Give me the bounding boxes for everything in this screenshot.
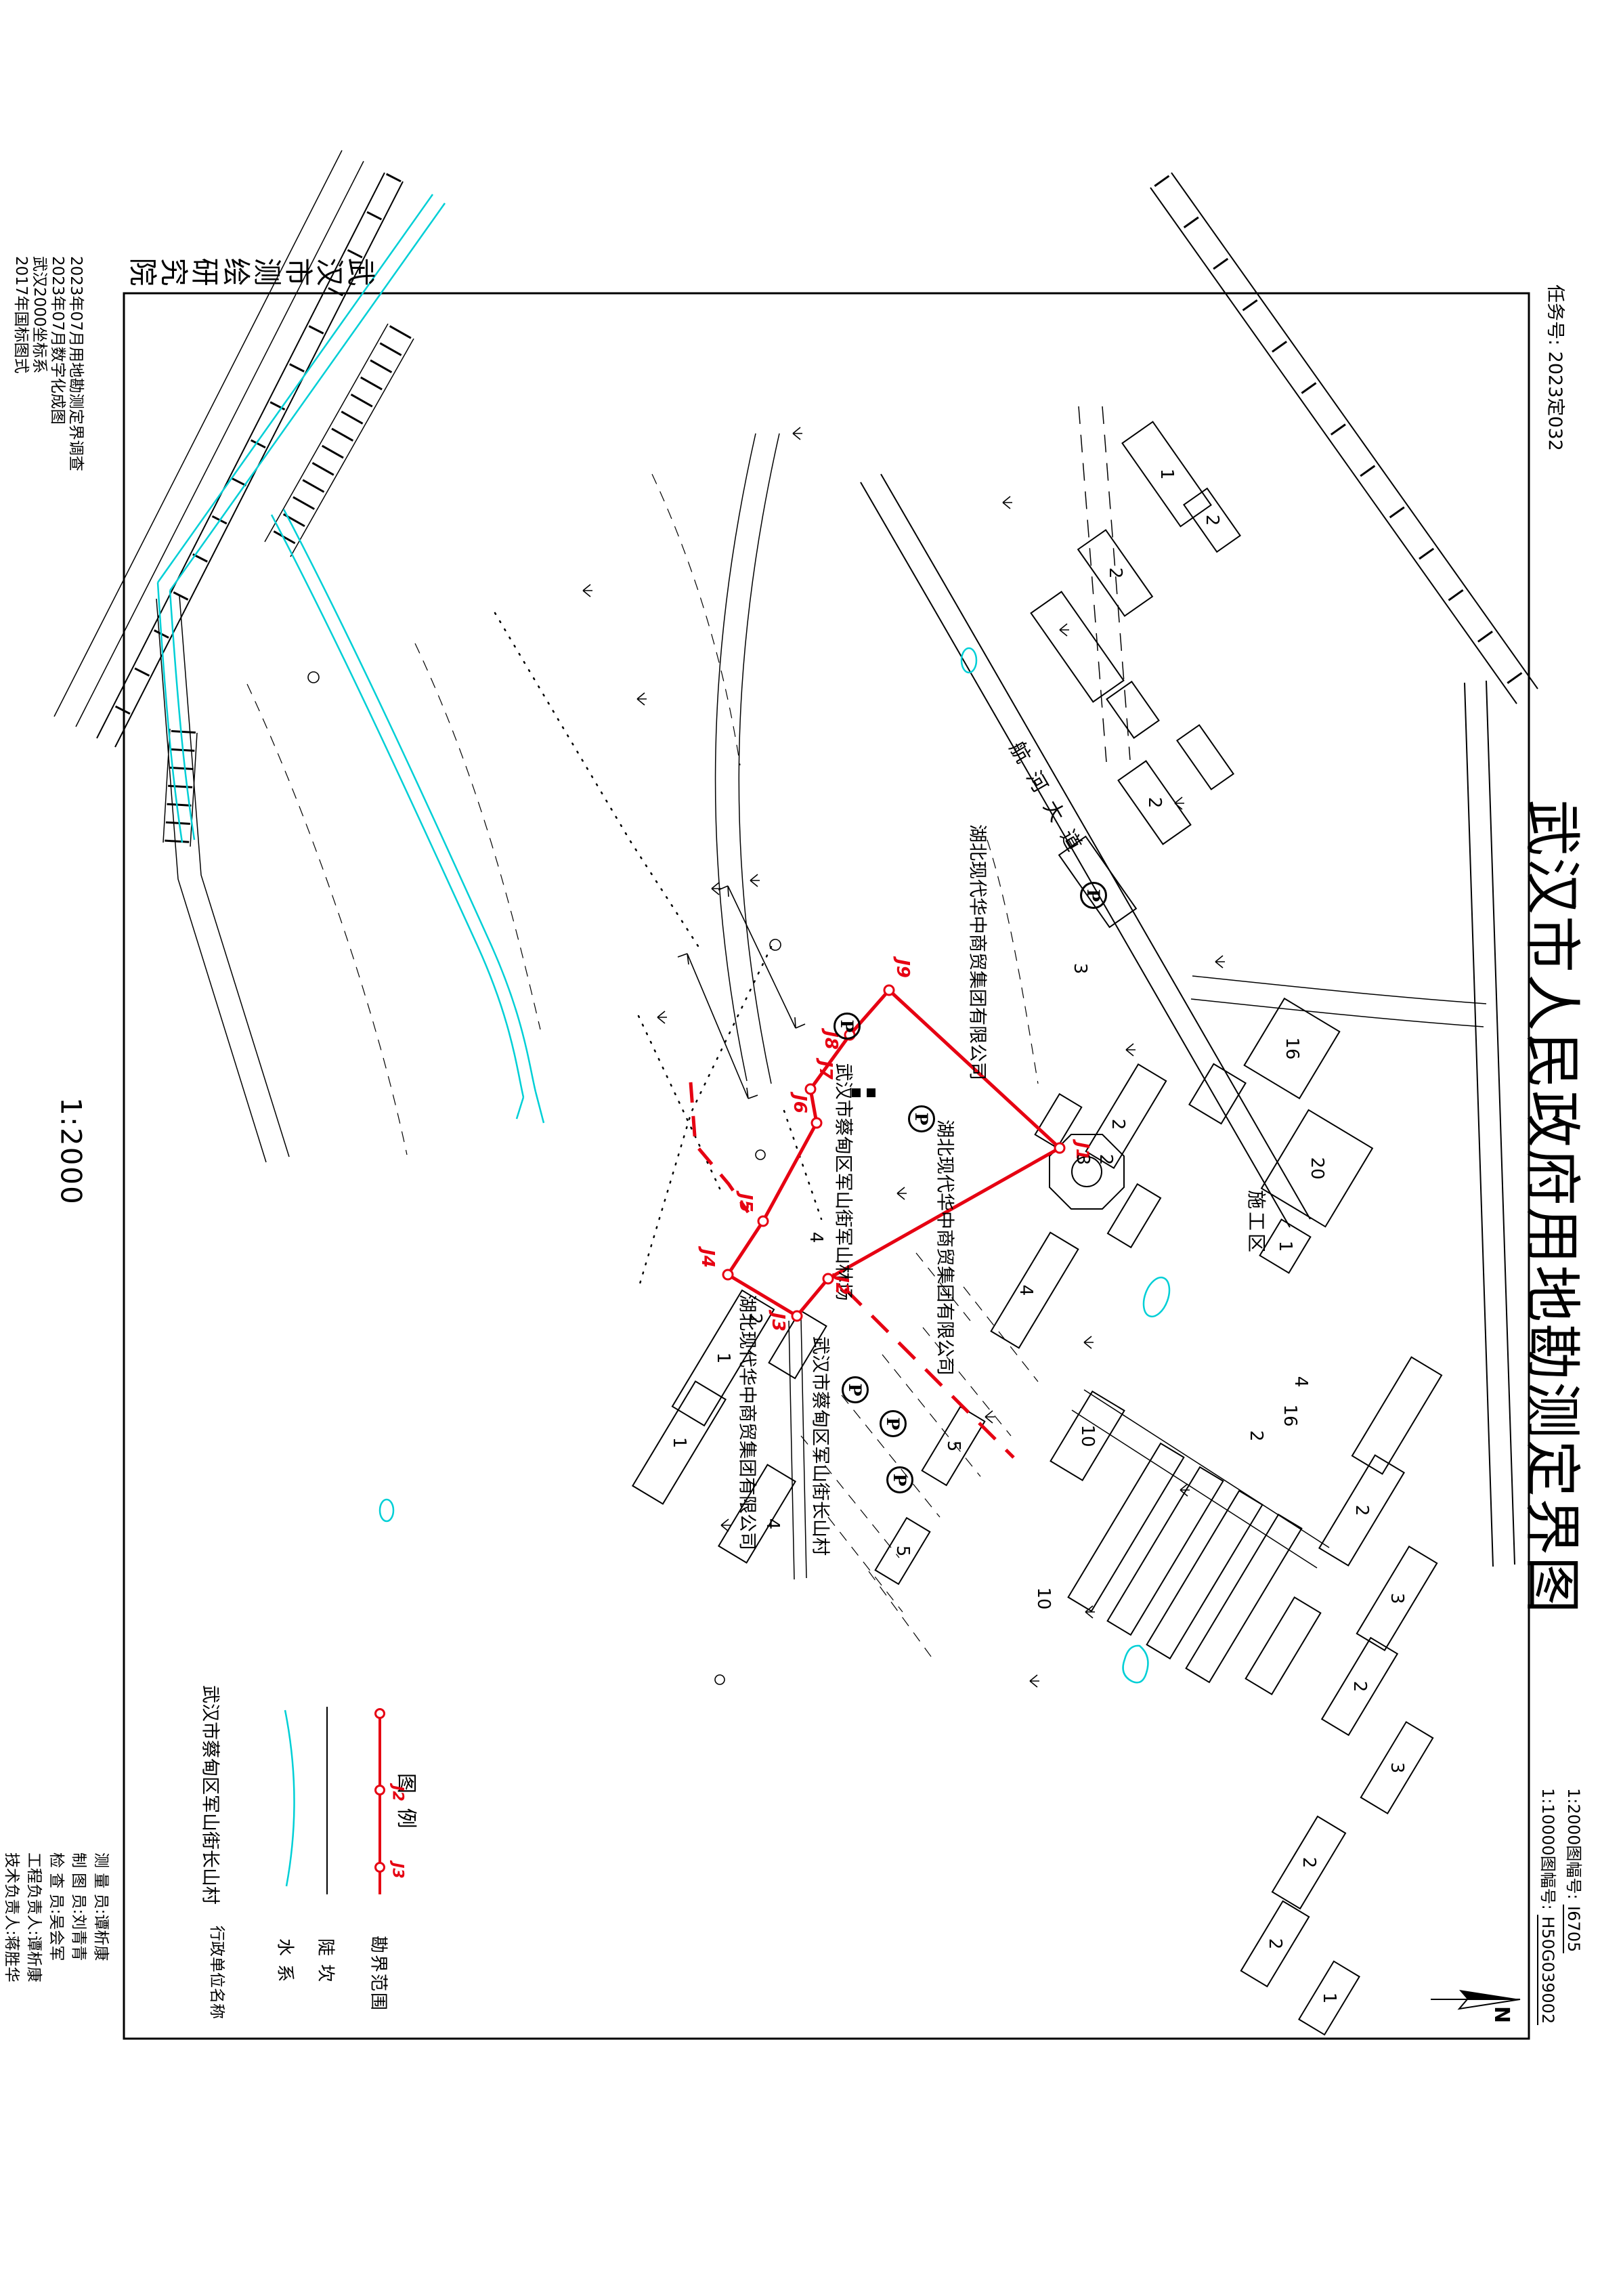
map-label: 5 <box>894 1546 911 1557</box>
page: 任务号: 2023定032 武汉市人民政府用地勘测定界图 1:2000图幅号: … <box>0 0 1600 2296</box>
survey-note: 武汉2000坐标系 <box>30 256 48 471</box>
map-label: 2 <box>1109 1119 1127 1130</box>
map-label: 3 <box>1071 963 1089 975</box>
map-label: 施工区 <box>1247 1190 1266 1255</box>
legend-water-label: 水 系 <box>274 1938 299 1983</box>
map-label: 2 <box>1351 1681 1368 1693</box>
legend-point-j3: J3 <box>389 1863 406 1879</box>
map-label: 1 <box>1320 1993 1338 2004</box>
task-number: 任务号: 2023定032 <box>1544 284 1570 451</box>
legend-admin-label: 行政单位名称 <box>207 1926 230 2019</box>
p-symbol: P <box>842 1376 869 1403</box>
map-label: 2 <box>1353 1505 1370 1516</box>
flow-arrows <box>678 886 805 1099</box>
survey-sheet: 任务号: 2023定032 武汉市人民政府用地勘测定界图 1:2000图幅号: … <box>0 0 1600 2296</box>
map-label: 1 <box>714 1353 732 1364</box>
water-lines <box>158 194 1174 1682</box>
map-label: 4 <box>807 1232 825 1243</box>
map-canvas <box>0 0 1600 2296</box>
map-label: 2 <box>1097 1154 1115 1166</box>
boundary-point-label: J3 <box>769 1313 787 1332</box>
map-label: 2 <box>1146 797 1163 809</box>
buildings <box>632 422 1442 2035</box>
legend-point-j2: J2 <box>389 1785 406 1802</box>
map-label: 2 <box>1300 1857 1318 1869</box>
map-label: 1 <box>1158 469 1175 480</box>
map-label: 2 <box>1266 1938 1284 1950</box>
map-label: 1 <box>670 1437 688 1449</box>
p-symbol: P <box>1080 882 1107 909</box>
map-label: 3 <box>1074 1154 1091 1166</box>
map-label: 2 <box>746 1313 764 1325</box>
map-label: 16 <box>1283 1037 1301 1059</box>
sheet-numbers: 1:2000图幅号: I6705 1:10000图幅号: H50G039002 <box>1535 1788 1586 2025</box>
map-label: 4 <box>1292 1376 1310 1388</box>
staff-row: 检 查 员:吴会军 <box>45 1852 67 1982</box>
map-label: 湖北现代华中商贸集团有限公司 <box>968 824 987 1080</box>
map-label: 2 <box>1106 568 1124 579</box>
grass-symbols <box>583 427 1225 1687</box>
staff-row: 技术负责人:蒋胜华 <box>0 1852 22 1982</box>
map-label: 10 <box>1079 1424 1096 1447</box>
map-label: 2 <box>1203 515 1221 526</box>
p-symbol: P <box>880 1410 907 1437</box>
point-symbols <box>308 672 875 1684</box>
boundary-point-label: J4 <box>699 1249 716 1268</box>
map-label: 16 <box>1281 1404 1299 1426</box>
map-label: 武汉市蔡甸区军山街长山村 <box>811 1336 829 1556</box>
map-label: 湖北现代华中商贸集团有限公司 <box>936 1120 954 1376</box>
legend-scarp-label: 陡 坎 <box>315 1938 340 1983</box>
p-symbol: P <box>908 1105 935 1132</box>
staff-row: 工程负责人:谭析康 <box>22 1852 45 1982</box>
map-label: 武汉市蔡甸区军山街军山林场 <box>834 1063 852 1301</box>
map-label: 2 <box>1247 1430 1265 1442</box>
boundary-point-label: J5 <box>737 1193 754 1212</box>
map-label: 5 <box>945 1441 962 1452</box>
map-label: 3 <box>1388 1762 1406 1774</box>
map-label: 10 <box>1035 1587 1052 1609</box>
boundary-point-label: J7 <box>817 1061 834 1080</box>
boundary-point-label: J2 <box>833 1276 850 1295</box>
legend-boundary-label: 勘界范围 <box>368 1936 393 2012</box>
legend-admin-value: 武汉市蔡甸区军山街长山村 <box>199 1685 225 1905</box>
boundary-point-label: J9 <box>894 959 911 978</box>
boundary-point-label: J6 <box>791 1094 808 1113</box>
staff-list: 测 量 员:谭析康制 图 员:刘青青检 查 员:吴会军工程负责人:谭析康技术负责… <box>0 1852 112 1982</box>
map-label: 20 <box>1308 1157 1326 1179</box>
map-label: 湖北现代华中商贸集团有限公司 <box>738 1294 756 1550</box>
survey-notes: 2023年07月用地勘测定界调查2023年07月数字化成图武汉2000坐标系20… <box>12 256 85 471</box>
map-label: 4 <box>764 1518 781 1530</box>
map-label: 1 <box>1276 1241 1294 1252</box>
publisher-label: 武汉市测绘研究院 <box>118 249 376 291</box>
map-label: 4 <box>1017 1285 1035 1296</box>
p-symbol: P <box>834 1013 861 1040</box>
legend-symbols <box>285 1707 385 1894</box>
survey-note: 2023年07月用地勘测定界调查 <box>66 256 85 471</box>
sheet-number-10000: 1:10000图幅号: H50G039002 <box>1535 1788 1561 2025</box>
staff-row: 制 图 员:刘青青 <box>67 1852 89 1982</box>
sheet-number-2000: 1:2000图幅号: I6705 <box>1561 1788 1586 2025</box>
staff-row: 测 量 员:谭析康 <box>89 1852 112 1982</box>
survey-note: 2023年07月数字化成图 <box>48 256 66 471</box>
survey-note: 2017年国标图式 <box>12 256 30 471</box>
legend-title: 图 例 <box>393 1773 423 1833</box>
sheet-title: 武汉市人民政府用地勘测定界图 <box>1515 799 1597 1615</box>
map-label: 3 <box>1388 1593 1406 1604</box>
scale-label: 1:2000 <box>55 1097 88 1206</box>
p-symbol: P <box>886 1466 913 1493</box>
north-label: N <box>1490 2006 1513 2023</box>
